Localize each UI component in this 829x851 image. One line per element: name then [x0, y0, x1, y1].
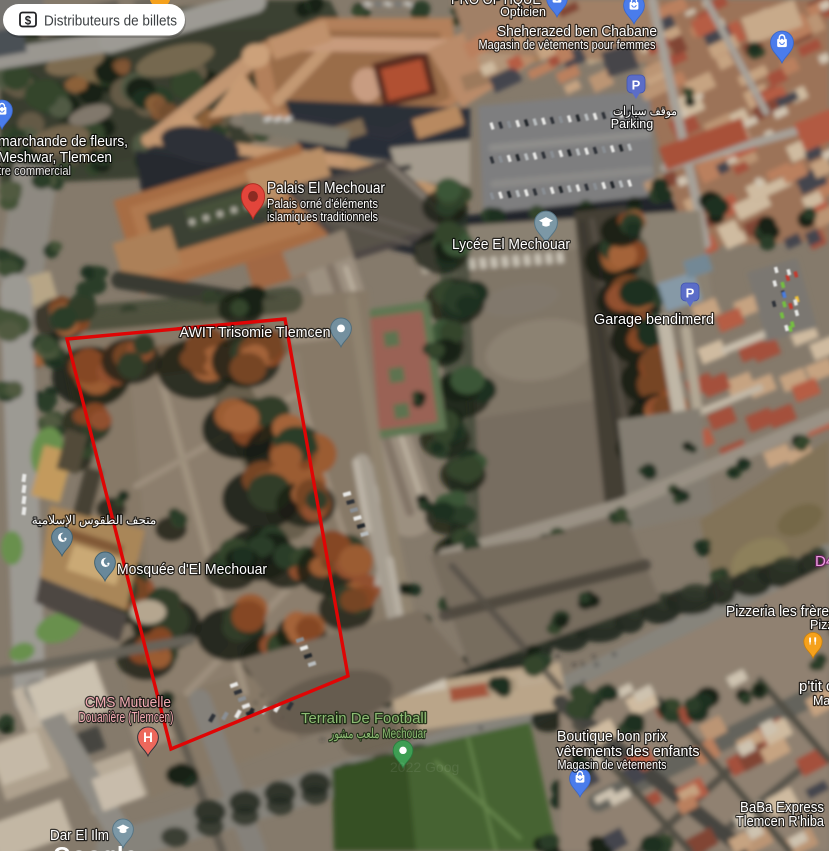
svg-text:Palais El Mechouar: Palais El Mechouar: [267, 180, 385, 197]
svg-text:Magasin de vêtements: Magasin de vêtements: [558, 758, 667, 772]
svg-text:p'tit c: p'tit c: [799, 678, 829, 695]
svg-text:متحف الطقوس الإسلامية: متحف الطقوس الإسلامية: [32, 513, 157, 528]
svg-text:Distributeurs de billets: Distributeurs de billets: [44, 14, 177, 30]
svg-text:Terrain De Football: Terrain De Football: [301, 711, 427, 727]
svg-text:marchande de fleurs,: marchande de fleurs,: [0, 133, 128, 150]
svg-text:Opticien: Opticien: [500, 5, 546, 19]
svg-text:ملعب مشور Mechouar: ملعب مشور Mechouar: [329, 726, 427, 742]
svg-text:islamiques traditionnels: islamiques traditionnels: [267, 209, 378, 224]
svg-text:$: $: [25, 16, 32, 28]
svg-text:Tlemcen R'hiba: Tlemcen R'hiba: [736, 813, 825, 830]
svg-text:tre commercial: tre commercial: [0, 163, 71, 178]
svg-text:Garage bendimerd: Garage bendimerd: [594, 311, 714, 328]
svg-text:Mosquée d'El Mechouar: Mosquée d'El Mechouar: [117, 561, 267, 578]
svg-text:Parking: Parking: [611, 117, 653, 131]
svg-text:Lycée El Mechouar: Lycée El Mechouar: [452, 236, 570, 253]
svg-text:AWIT Trisomie Tlemcen: AWIT Trisomie Tlemcen: [180, 324, 331, 341]
svg-text:Maga: Maga: [813, 694, 829, 708]
svg-text:Douanière (Tlemcen): Douanière (Tlemcen): [79, 709, 174, 726]
svg-text:2022 Goog: 2022 Goog: [390, 759, 459, 775]
svg-text:Google: Google: [53, 842, 138, 851]
svg-text:D45: D45: [815, 553, 829, 570]
svg-text:موقف سيارات: موقف سيارات: [613, 104, 677, 118]
svg-text:Pizze: Pizze: [810, 618, 829, 632]
svg-text:Magasin de vêtements pour femm: Magasin de vêtements pour femmes: [479, 38, 656, 52]
